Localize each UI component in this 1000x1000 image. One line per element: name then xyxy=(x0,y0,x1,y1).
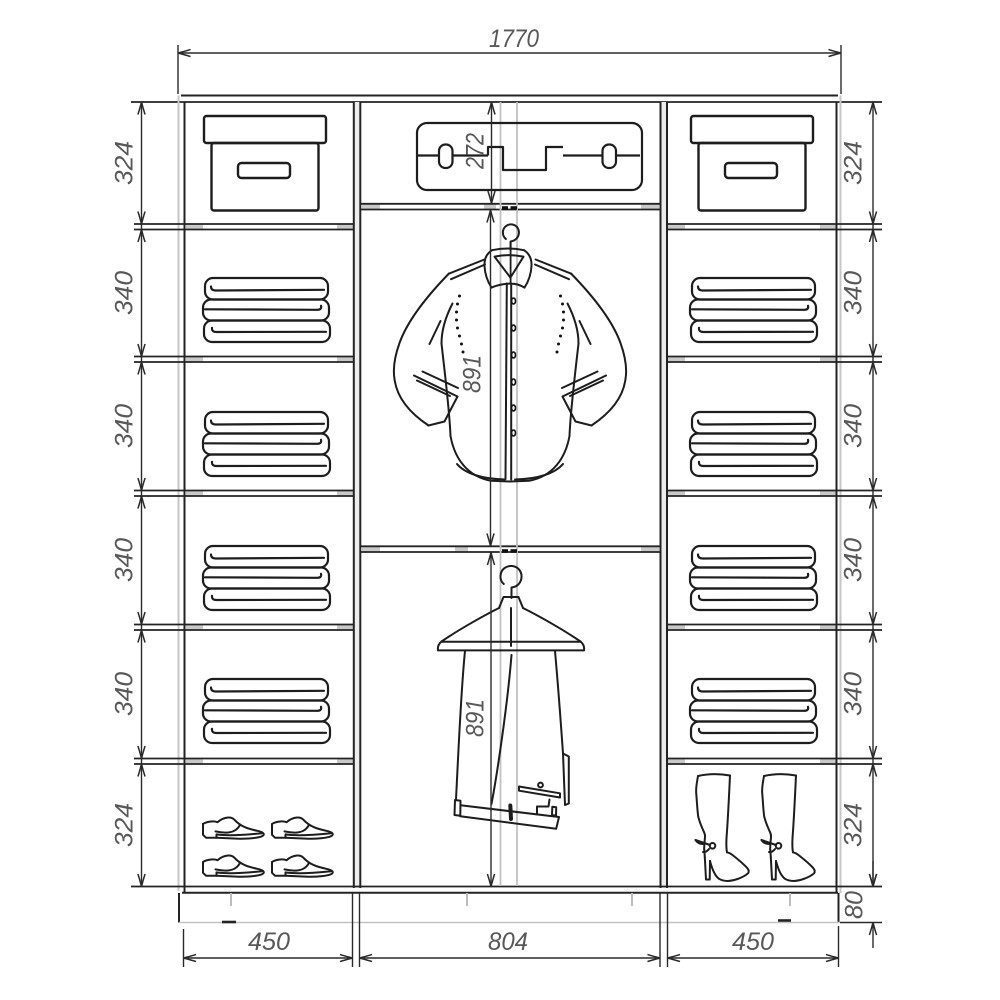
svg-text:324: 324 xyxy=(111,141,139,185)
svg-text:340: 340 xyxy=(840,672,868,716)
svg-text:891: 891 xyxy=(459,355,487,393)
svg-text:891: 891 xyxy=(462,699,490,737)
svg-text:340: 340 xyxy=(111,404,139,448)
svg-text:340: 340 xyxy=(111,672,139,716)
svg-text:340: 340 xyxy=(840,271,868,315)
svg-text:272: 272 xyxy=(462,133,490,170)
svg-text:324: 324 xyxy=(840,803,868,847)
svg-text:340: 340 xyxy=(840,404,868,448)
svg-text:1770: 1770 xyxy=(489,25,539,53)
svg-text:340: 340 xyxy=(840,538,868,582)
svg-text:450: 450 xyxy=(732,928,774,956)
svg-text:340: 340 xyxy=(111,271,139,315)
svg-text:340: 340 xyxy=(111,538,139,582)
svg-text:450: 450 xyxy=(248,928,290,956)
svg-text:324: 324 xyxy=(111,803,139,847)
svg-text:80: 80 xyxy=(841,891,869,919)
svg-text:804: 804 xyxy=(488,928,528,956)
svg-text:324: 324 xyxy=(840,141,868,185)
